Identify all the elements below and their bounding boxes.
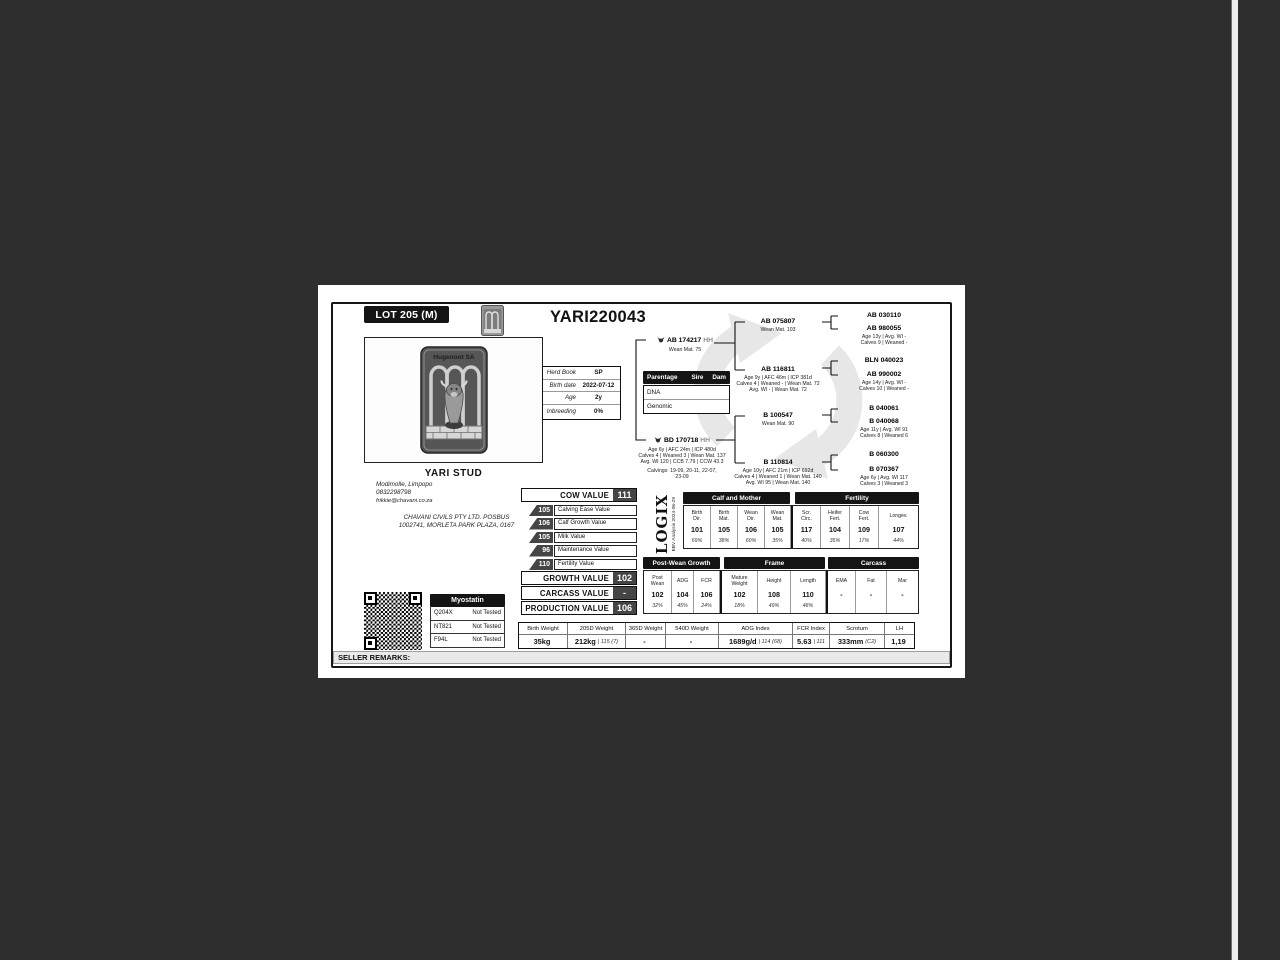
weights-column: FCR Index 5.63| 111	[793, 623, 830, 648]
frame-header: Frame	[724, 557, 825, 569]
ebv-bottom-table: PostWean 102 32% ADG 104 45% FCR 106 24%…	[643, 570, 919, 614]
weights-column: Scrotum 333mm(C2)	[830, 623, 885, 648]
production-value-box: PRODUCTION VALUE 106	[521, 601, 637, 615]
ebv-column: Fat -	[856, 571, 887, 613]
sub-value-row: 110 Fertility Value	[529, 559, 637, 571]
ebv-column: HeiferFert. 104 35%	[821, 506, 850, 548]
ebv-column: MatureWeight 102 18%	[720, 571, 758, 613]
ebv-column: ADG 104 45%	[672, 571, 694, 613]
growth-value-box: GROWTH VALUE 102	[521, 571, 637, 585]
weights-column: 540D Weight -	[666, 623, 719, 648]
ebv-column: Longev. 107 44%	[879, 506, 918, 548]
ebv-column: CowFert. 109 17%	[850, 506, 879, 548]
ebv-analysis-date: EBV Analysis 2024-06-29	[672, 497, 677, 551]
ebv-top-table: BirthDir. 101 69% BirthMat. 105 38% Wean…	[683, 505, 919, 549]
ebv-column: EMA -	[826, 571, 856, 613]
table-row: NT821 Not Tested	[430, 621, 505, 635]
weights-column: LH 1,19	[885, 623, 914, 648]
pedigree-node-sire: AB 174217 HH Wean Mat. 75	[630, 336, 740, 353]
calf-and-mother-header: Calf and Mother	[683, 492, 790, 504]
pedigree-node-ggp: AB 980055 Age 13y | Avg. WI - Calves 9 |…	[839, 325, 929, 346]
table-row: F94L Not Tested	[430, 634, 505, 648]
ebv-column: BirthMat. 105 38%	[711, 506, 738, 548]
cow-value-number: 111	[613, 489, 636, 501]
weights-column: 205D Weight 212kg| 115 (7)	[568, 623, 626, 648]
pedigree-node-ggp: B 040068 Age 11y | Avg. WI 91 Calves 8 |…	[839, 418, 929, 439]
ebv-column: WeanDir. 106 60%	[738, 506, 765, 548]
pedigree-node-ggp: BLN 040023	[839, 357, 929, 366]
pedigree-node-ggp: B 070367 Age 6y | Avg. WI 117 Calves 3 |…	[839, 466, 929, 487]
ebv-column: Scr.Circ. 117 40%	[791, 506, 821, 548]
weights-column: ADG Index 1689g/d| 114 (68)	[719, 623, 793, 648]
catalog-page: LOT 205 (M) YARI220043 Hugenoot SA	[318, 285, 965, 678]
weights-column: 365D Weight -	[626, 623, 666, 648]
ebv-column: BirthDir. 101 69%	[684, 506, 711, 548]
weights-table: Birth Weight 35kg 205D Weight 212kg| 115…	[518, 622, 915, 649]
carcass-value-box: CARCASS VALUE -	[521, 586, 637, 600]
logix-logo: LOGIX EBV Analysis 2024-06-29	[645, 491, 685, 557]
bull-head-icon	[657, 336, 665, 347]
ebv-column: Height 108 49%	[758, 571, 791, 613]
sub-value-row: 105 Calving Ease Value	[529, 505, 637, 517]
pedigree-node-ggp: B 040061	[839, 405, 929, 414]
myostatin-table: Myostatin Q204X Not Tested NT821 Not Tes…	[430, 594, 505, 648]
ebv-column: FCR 106 24%	[694, 571, 720, 613]
post-wean-growth-header: Post-Wean Growth	[643, 557, 720, 569]
adjacent-page-edge	[1231, 0, 1238, 960]
ebv-column: PostWean 102 32%	[644, 571, 672, 613]
pedigree-node-dam-dam: B 110814 Age 10y | AFC 21m | ICP 692d Ca…	[719, 459, 837, 487]
pedigree-node-ggp: AB 030110	[839, 312, 929, 321]
bull-head-icon	[654, 436, 662, 447]
pedigree-node-ggp: AB 990002 Age 14y | Avg. WI - Calves 10 …	[839, 371, 929, 392]
seller-remarks-bar: SELLER REMARKS:	[333, 651, 950, 664]
sub-value-row: 105 Milk Value	[529, 532, 637, 544]
table-row: Q204X Not Tested	[430, 607, 505, 621]
fertility-header: Fertility	[795, 492, 919, 504]
pedigree-node-dam-sire: B 100547 Wean Mat. 90	[723, 412, 833, 427]
pedigree-node-sire-dam: AB 116811 Age 9y | AFC 46m | ICP 381d Ca…	[719, 366, 837, 394]
carcass-header: Carcass	[828, 557, 919, 569]
qr-code	[364, 592, 422, 650]
pedigree-node-sire-sire: AB 075807 Wean Mat. 103	[723, 318, 833, 333]
sub-value-row: 106 Calf Growth Value	[529, 518, 637, 530]
ebv-column: Length 110 48%	[791, 571, 826, 613]
cow-value-box: COW VALUE 111	[521, 488, 637, 502]
weights-column: Birth Weight 35kg	[519, 623, 568, 648]
pedigree-node-ggp: B 060300	[839, 451, 929, 460]
ebv-column: Mar -	[887, 571, 918, 613]
ebv-column: WeanMat. 105 35%	[765, 506, 791, 548]
sub-value-row: 96 Maintenance Value	[529, 545, 637, 557]
